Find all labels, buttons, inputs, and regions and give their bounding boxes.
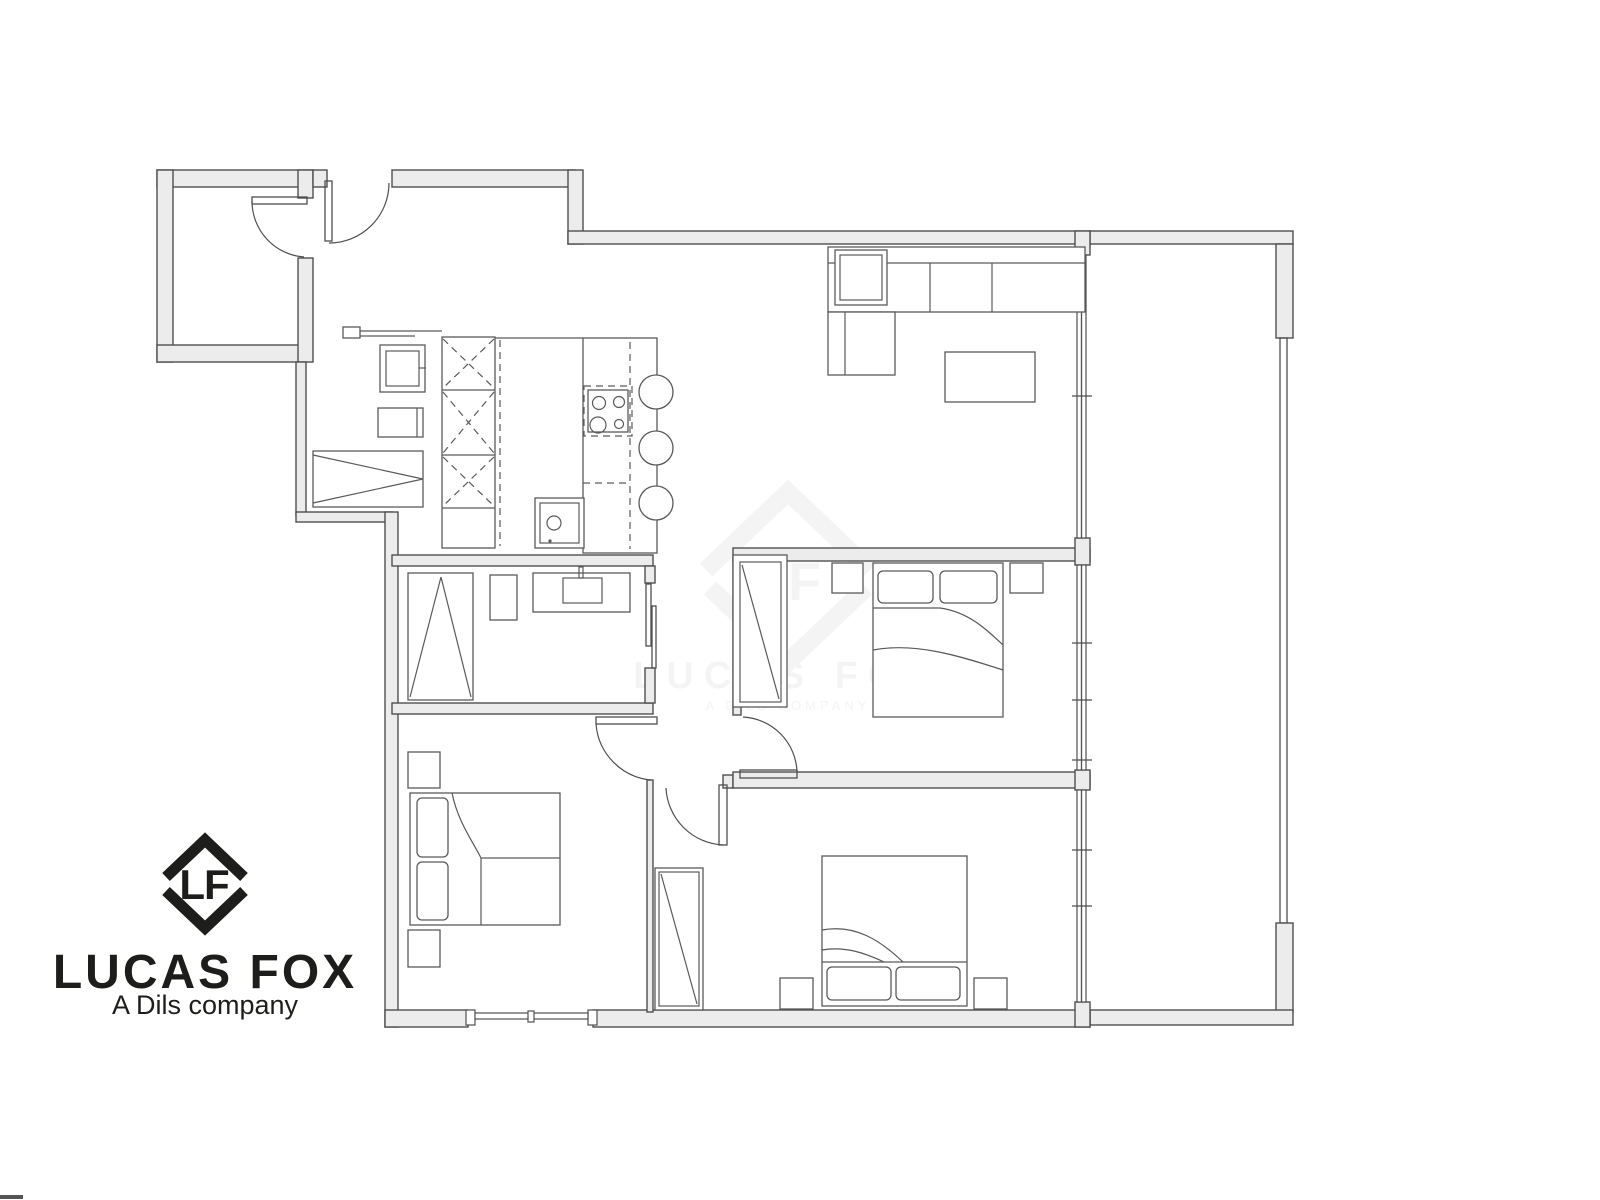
floorplan-canvas: LF LUCAS FOX A DILS COMPANY [0, 0, 1600, 1200]
utility-bedroom2-wall [392, 703, 653, 714]
storeroom-wall-top [157, 170, 313, 187]
right-wall-chunk-master-bed3 [1075, 770, 1090, 790]
bar-stool-1 [639, 375, 673, 409]
master-bedroom [733, 555, 1043, 717]
right-wall-chunk-living-master [1075, 538, 1090, 565]
watermark-tagline: A DILS COMPANY [706, 698, 871, 713]
master-nightstand-left [832, 563, 863, 593]
bedroom-3 [655, 856, 1007, 1010]
coat-closet [313, 451, 423, 507]
utility-room [408, 567, 630, 700]
logo-tagline: A Dils company [112, 990, 299, 1020]
bedroom-2 [408, 752, 560, 967]
bedroom3-nightstand-right [974, 978, 1007, 1009]
utility-east-wall-upper [645, 566, 655, 583]
storeroom-door-swing [252, 201, 304, 257]
kitchen [442, 337, 673, 553]
left-wall-step [296, 512, 392, 522]
logo-monogram: LF [179, 861, 229, 908]
wall-shelf-lines [360, 331, 442, 336]
bottom-wall-east [593, 1010, 1090, 1027]
bedroom2-pillow-top [417, 798, 448, 857]
entry-hall [313, 327, 442, 507]
top-wall-left [392, 170, 575, 187]
wall-shelf-bracket [343, 327, 360, 338]
sofa-chaise [828, 312, 895, 375]
bedroom2-bedroom3-wall [647, 780, 653, 1012]
bedroom2-pillow-bottom [417, 862, 448, 920]
storeroom-wall-bottom [157, 345, 306, 362]
bar-stool-3 [639, 486, 673, 520]
bedroom3-pillow-left [827, 967, 891, 1000]
bedroom2-door-swing [596, 724, 651, 780]
bedroom2-window-mid-jamb [528, 1011, 534, 1022]
tall-cabinet-column [442, 337, 495, 548]
terrace-wall-right-top [1276, 244, 1293, 338]
entry-door-leaf [325, 181, 332, 241]
bedroom3-door-swing [666, 788, 723, 845]
utility-sliding-door-panel-1 [646, 584, 651, 646]
bedroom3-nightstand-left [780, 978, 813, 1009]
sofa-corner-seat [835, 250, 887, 305]
bedroom3-door-leaf [719, 785, 727, 845]
bottom-wall-west [385, 1010, 468, 1027]
bedroom2-window-jamb-left [466, 1010, 475, 1025]
corner-artifact [0, 1195, 23, 1199]
desk [533, 573, 630, 612]
sink-tap-dot [548, 539, 551, 542]
left-wall-lower [385, 512, 398, 1027]
top-wall-right [568, 231, 1090, 244]
terrace-railing [1280, 338, 1287, 923]
terrace-wall-top [1090, 231, 1293, 244]
entry-door-swing [329, 183, 389, 243]
washing-machine [380, 345, 425, 392]
bedroom2-door-leaf [596, 717, 657, 724]
sink-unit [535, 498, 584, 548]
living-room [828, 247, 1085, 402]
bedroom3-north-wall-stub [723, 775, 733, 788]
page: { "page": { "background_color": "#ffffff… [0, 0, 1600, 1200]
bedroom2-nightstand-top [408, 752, 440, 788]
bar-stool-2 [639, 431, 673, 465]
master-pillow-left [878, 571, 933, 603]
kitchen-utility-wall [392, 555, 653, 566]
master-pillow-right [940, 571, 997, 603]
right-wall-chunk-bottom [1075, 1002, 1090, 1027]
storeroom-wall-right-lower [298, 258, 313, 362]
brand-logo: LF LUCAS FOX A Dils company [53, 840, 357, 1020]
utility-wardrobe [408, 573, 473, 700]
hob [588, 390, 628, 432]
terrace-wall-bottom [1090, 1010, 1293, 1025]
desk-chair [490, 575, 517, 620]
bedroom2-nightstand-bottom [408, 930, 440, 967]
master-door-swing [743, 717, 797, 771]
master-bedroom3-wall [733, 772, 1090, 788]
bedroom3-pillow-right [896, 967, 960, 1000]
left-wall-mid [296, 362, 306, 515]
bedroom2-window-jamb-right [588, 1010, 597, 1025]
master-nightstand-right [1010, 563, 1043, 593]
storeroom-wall-right-upper [298, 170, 313, 198]
appliance-cabinet [378, 408, 423, 437]
coffee-table [945, 352, 1035, 402]
terrace-wall-right-bottom [1276, 923, 1293, 1012]
utility-east-wall-lower [645, 668, 655, 703]
storeroom-wall-left [157, 170, 173, 362]
